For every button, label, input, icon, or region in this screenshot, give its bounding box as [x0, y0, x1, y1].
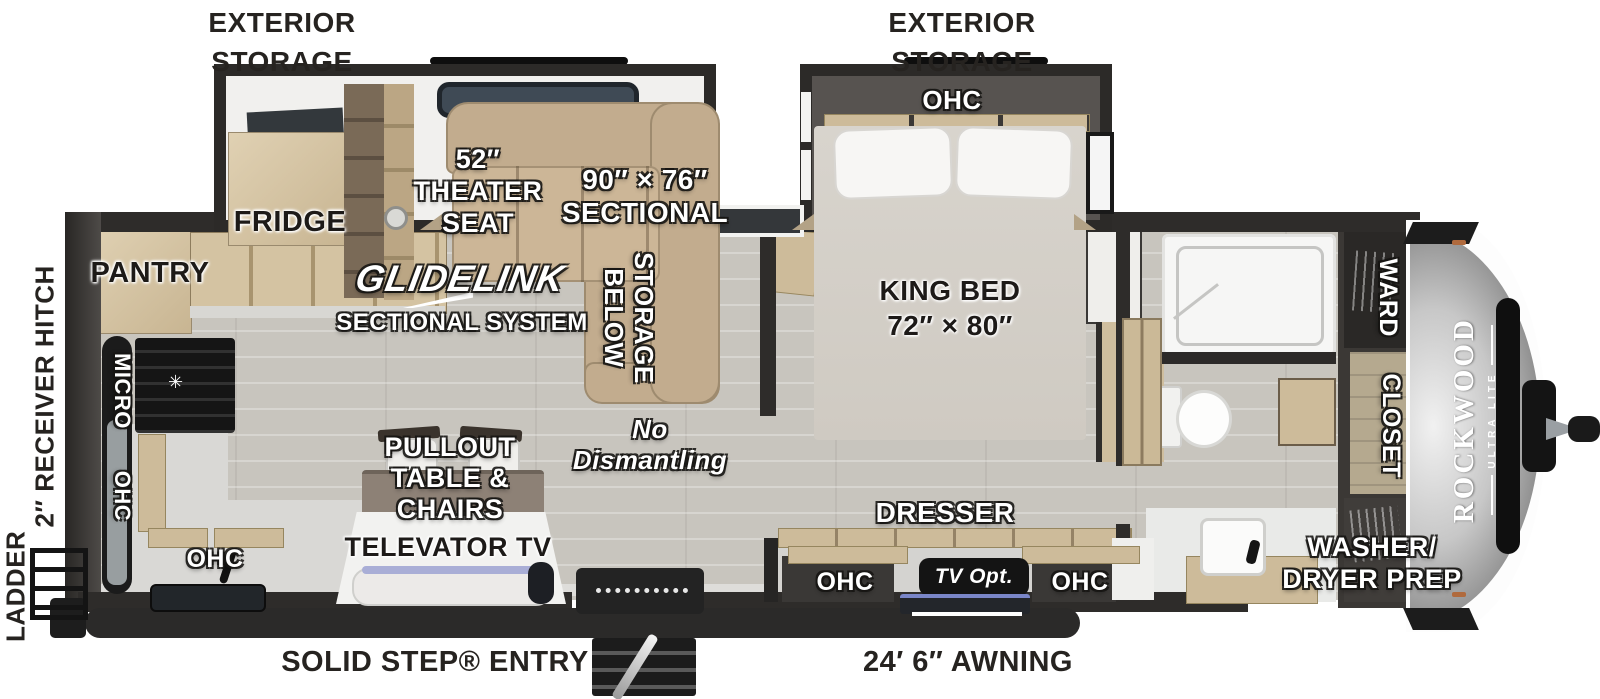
- label-awning: 24′ 6″ AWNING: [788, 645, 1148, 679]
- bed-slide-window-left-1: [801, 92, 811, 142]
- label-ward: WARD: [1372, 243, 1402, 353]
- floorplan-canvas: ✳: [0, 0, 1600, 699]
- label-ohc-bed-slide: OHC: [892, 85, 1012, 116]
- cabinet-right-of-bed: [1086, 226, 1142, 324]
- bedroom-tv-console: [900, 594, 1030, 614]
- partition-wall: [760, 226, 776, 416]
- dresser-top: [778, 528, 1132, 548]
- label-exterior-storage-left: EXTERIOR STORAGE: [132, 4, 432, 81]
- label-washer-dryer: WASHER/ DRYER PREP: [1222, 532, 1522, 596]
- shower-threshold: [1162, 352, 1336, 364]
- dresser-end-post: [764, 538, 778, 602]
- label-receiver-hitch: 2″ RECEIVER HITCH: [30, 251, 61, 541]
- stove-burner-star-icon: ✳: [168, 372, 183, 393]
- hitch-jack-handle: [1568, 416, 1600, 442]
- bedroom-tv-base: [912, 612, 1022, 616]
- front-cap-bottom-wedge: [1403, 608, 1479, 630]
- bed-slide-window-left-2: [801, 150, 811, 200]
- medicine-cabinet: [1278, 378, 1336, 446]
- glidelink-wordmark: GLIDELINK: [352, 258, 568, 300]
- cap-marker-top-icon: [1452, 240, 1466, 245]
- label-ohc-kitchen-wall: OHC: [109, 461, 135, 531]
- stove-cooktop: [135, 338, 235, 433]
- bath-door: [1122, 318, 1162, 466]
- brand-sub-text: ULTRA LITE: [1487, 371, 1498, 468]
- label-king-bed: KING BED 72″ × 80″: [820, 273, 1080, 343]
- bedroom-ohc-left-top: [788, 546, 908, 564]
- bed-slide-window-right: [1086, 132, 1114, 214]
- sectional-right-arm: [650, 102, 720, 404]
- toilet-bowl: [1176, 390, 1232, 448]
- front-windshield-stripe: [1496, 298, 1520, 554]
- label-pantry: PANTRY: [50, 256, 250, 290]
- label-ladder: LADDER: [1, 516, 32, 656]
- label-closet: CLOSET: [1375, 346, 1405, 506]
- televator-tv-roller: [528, 562, 554, 604]
- front-cap-top-wedge: [1403, 222, 1479, 244]
- label-sectional: 90″ × 76″ SECTIONAL: [525, 163, 765, 229]
- entry-step-treads: [596, 588, 688, 593]
- kitchen-sink: [150, 584, 266, 612]
- brand-rule-left: [1491, 475, 1493, 515]
- brand-rule-right: [1491, 325, 1493, 365]
- label-sectional-system: SECTIONAL SYSTEM: [312, 309, 612, 337]
- label-televator-tv: TELEVATOR TV: [298, 532, 598, 564]
- label-brand-rockwood: ROCKWOOD: [1447, 270, 1481, 570]
- label-storage-below: STORAGE BELOW: [598, 243, 658, 393]
- kitchen-cabinet-door: [138, 434, 166, 532]
- label-exterior-storage-right: EXTERIOR STORAGE: [812, 4, 1112, 81]
- label-brand-ultra-lite: ULTRA LITE: [1485, 325, 1499, 515]
- wall-top-right: [1104, 212, 1420, 232]
- label-solid-step-entry: SOLID STEP® ENTRY: [235, 645, 635, 679]
- bedroom-ohc-right-top: [1022, 546, 1140, 564]
- label-ohc-kitchen: OHC: [155, 545, 275, 575]
- label-pullout-table: PULLOUT TABLE & CHAIRS: [330, 432, 570, 525]
- rear-ladder: [30, 548, 88, 620]
- label-fridge: FRIDGE: [190, 205, 390, 239]
- glidelink-logo: GLIDELINK: [345, 258, 575, 308]
- label-micro: MICRO: [109, 331, 135, 451]
- label-dresser: DRESSER: [825, 496, 1065, 529]
- pillow-right: [955, 126, 1073, 200]
- pillow-left: [833, 126, 953, 200]
- televator-tv-screen-edge: [362, 566, 538, 574]
- label-ohc-dresser-right: OHC: [1025, 568, 1135, 598]
- label-tv-opt: TV Opt.: [919, 565, 1029, 590]
- shower-inner-line: [1176, 246, 1324, 346]
- label-ohc-dresser-left: OHC: [790, 568, 900, 598]
